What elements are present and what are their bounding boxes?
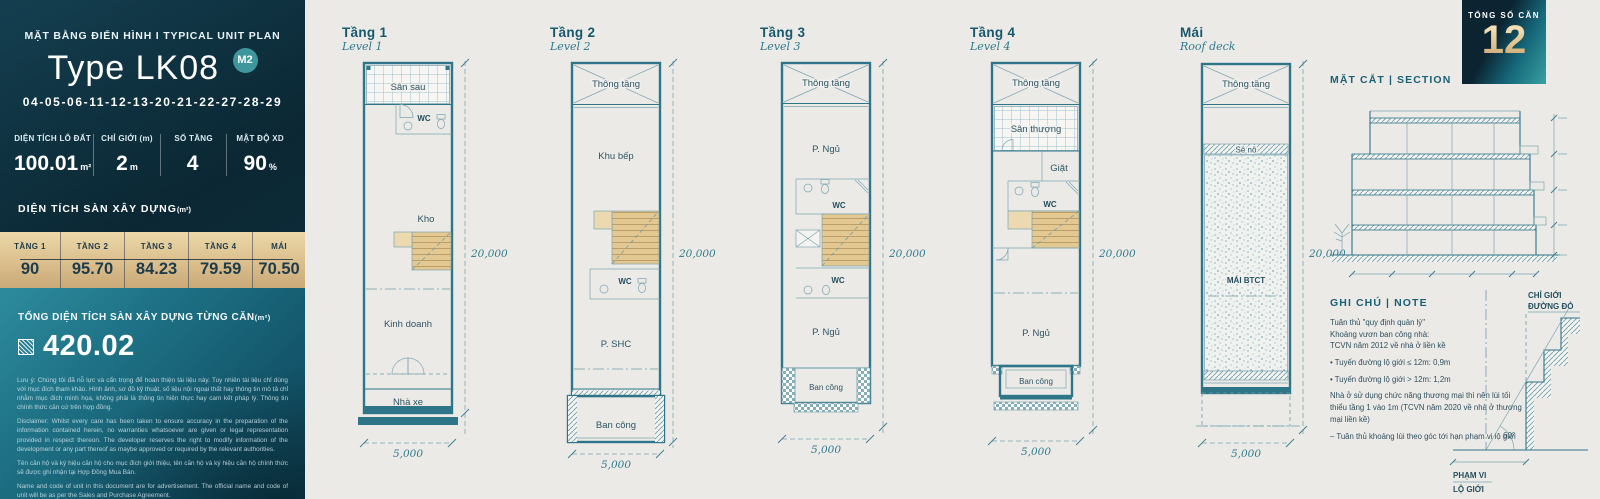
badge-value: 12 xyxy=(1462,20,1546,61)
sidebar-header: MẶT BẰNG ĐIỂN HÌNH I TYPICAL UNIT PLAN xyxy=(0,30,305,42)
room-wc-lower: WC xyxy=(831,276,845,285)
stat-label: MẬT ĐỘ XD xyxy=(229,134,291,143)
stat-value: 100.01m² xyxy=(14,152,91,176)
label-pham-vi: PHẠM VI xyxy=(1453,471,1486,480)
dim-horizontal: 5,000 xyxy=(393,448,423,460)
section-heading: MẶT CẮT | SECTION xyxy=(1330,74,1451,86)
room-kinh-doanh: Kinh doanh xyxy=(384,319,432,330)
disclaimer-vi: Lưu ý: Chúng tôi đã nỗ lực và cẩn trọng … xyxy=(17,376,288,412)
note-heading: GHI CHÚ | NOTE xyxy=(1330,297,1428,309)
total-area-title: TỔNG DIỆN TÍCH SÀN XÂY DỰNG TỪNG CĂN(m²) xyxy=(0,288,305,323)
total-units-badge: TỔNG SỐ CĂN 12 xyxy=(1462,0,1546,84)
label-chi-gioi: CHỈ GIỚI xyxy=(1528,291,1562,300)
room-wc-upper: WC xyxy=(832,201,846,210)
room-p-ngu-lower: P. Ngủ xyxy=(812,327,840,338)
table-divider xyxy=(20,259,293,260)
room-wc: WC xyxy=(417,114,431,123)
plan-title: Tầng 1 xyxy=(342,25,520,40)
label-duong-do: ĐƯỜNG ĐỎ xyxy=(1528,302,1573,311)
dim-horizontal: 5,000 xyxy=(601,459,631,471)
dim-vertical: 20,000 xyxy=(1098,248,1136,260)
type-title: Type LK08 xyxy=(47,49,219,87)
plan-drawing: 20,000 Sân sau WC Kho Kinh doanh xyxy=(358,59,508,460)
room-san-sau: Sân sau xyxy=(391,82,426,93)
plan-subtitle: Level 3 xyxy=(760,40,938,53)
stat-floors: SỐ TẦNG 4 xyxy=(161,134,228,176)
stat-label: SỐ TẦNG xyxy=(163,134,225,143)
room-thong-tang: Thông tầng xyxy=(802,78,850,89)
room-ban-cong: Ban công xyxy=(809,383,843,392)
disclaimer: Lưu ý: Chúng tôi đã nỗ lực và cẩn trọng … xyxy=(17,376,288,499)
floorplan-level-1: 20,000 Sân sau WC Kho Kinh doanh xyxy=(320,56,520,486)
floorplan-level-2: 20,000 Thông tầng Khu bếp WC P. SHC xyxy=(528,56,728,486)
plan-subtitle: Level 4 xyxy=(970,40,1148,53)
type-row: Type LK08 M2 xyxy=(0,48,305,88)
stat-label: CHỈ GIỚI (m) xyxy=(96,134,158,143)
dim-horizontal: 5,000 xyxy=(1231,448,1261,460)
setback-graphics: CHỈ GIỚI ĐƯỜNG ĐỎ 60° PHẠM VI LỘ GIỚI xyxy=(1450,290,1588,494)
plan-level-1: Tầng 1 Level 1 20,000 Sân sau WC Kho xyxy=(320,25,520,486)
room-kho: Kho xyxy=(418,214,435,225)
strip-se-no: Sê nô xyxy=(1236,146,1257,155)
label-angle: 60° xyxy=(1503,431,1515,440)
total-area-row: 420.02 xyxy=(18,330,305,363)
hatch-square-icon xyxy=(18,339,34,355)
dim-vertical: 20,000 xyxy=(888,248,926,260)
label-lo-gioi: LỘ GIỚI xyxy=(1453,485,1484,494)
unit-name-note-en: Name and code of unit in this document a… xyxy=(17,482,288,499)
stats-row: DIỆN TÍCH LÔ ĐẤT 100.01m² CHỈ GIỚI (m) 2… xyxy=(12,134,293,176)
plan-subtitle: Roof deck xyxy=(1180,40,1358,53)
room-p-shc: P. SHC xyxy=(601,339,632,350)
room-p-ngu: P. Ngủ xyxy=(1022,328,1050,339)
stat-value: 90% xyxy=(229,152,291,176)
plan-title: Tầng 3 xyxy=(760,25,938,40)
room-thong-tang: Thông tầng xyxy=(1222,79,1270,90)
room-khu-bep: Khu bếp xyxy=(598,151,633,162)
unit-name-note-vi: Tên căn hộ và ký hiệu căn hộ cho mục đíc… xyxy=(17,459,288,477)
floor-area-title: DIỆN TÍCH SÀN XÂY DỰNG(m²) xyxy=(18,203,305,215)
room-ban-cong: Ban công xyxy=(596,420,636,431)
stat-setback: CHỈ GIỚI (m) 2m xyxy=(94,134,161,176)
floor-area-col-4: TẦNG 4 79.59 xyxy=(189,232,253,288)
floor-area-col-3: TẦNG 3 84.23 xyxy=(125,232,189,288)
plan-level-4: Tầng 4 Level 4 20,000 Thông tầng Sân thư… xyxy=(948,25,1148,486)
room-giat: Giặt xyxy=(1050,163,1068,174)
plan-level-3: Tầng 3 Level 3 20,000 Thông tầng P. Ngủ … xyxy=(738,25,938,486)
plan-subtitle: Level 1 xyxy=(342,40,520,53)
room-p-ngu-upper: P. Ngủ xyxy=(812,144,840,155)
dim-horizontal: 5,000 xyxy=(811,444,841,456)
plan-title: Tầng 2 xyxy=(550,25,728,40)
total-area-value: 420.02 xyxy=(43,330,135,363)
plan-title: Tầng 4 xyxy=(970,25,1148,40)
plan-drawing: 20,000 Thông tầng Sân thượng Giặt WC xyxy=(988,59,1136,458)
room-thong-tang: Thông tầng xyxy=(1012,78,1060,89)
floor-area-col-2: TẦNG 2 95.70 xyxy=(61,232,125,288)
section-drawing xyxy=(1322,92,1572,292)
plan-drawing: 20,000 Thông tầng P. Ngủ WC WC xyxy=(778,59,926,456)
room-wc: WC xyxy=(1043,200,1057,209)
dim-horizontal: 5,000 xyxy=(1021,446,1051,458)
plan-subtitle: Level 2 xyxy=(550,40,728,53)
type-badge: M2 xyxy=(233,48,258,73)
dim-vertical: 20,000 xyxy=(678,248,716,260)
floorplan-level-4: 20,000 Thông tầng Sân thượng Giặt WC xyxy=(948,56,1148,486)
total-area-block: TỔNG DIỆN TÍCH SÀN XÂY DỰNG TỪNG CĂN(m²)… xyxy=(0,288,305,499)
setback-diagram: CHỈ GIỚI ĐƯỜNG ĐỎ 60° PHẠM VI LỘ GIỚI xyxy=(1448,282,1598,497)
floor-area-col-roof: MÁI 70.50 xyxy=(253,232,305,288)
stat-density: MẬT ĐỘ XD 90% xyxy=(227,134,293,176)
floor-area-col-1: TẦNG 1 90 xyxy=(0,232,61,288)
floorplan-level-3: 20,000 Thông tầng P. Ngủ WC WC xyxy=(738,56,938,486)
stat-value: 2m xyxy=(96,152,158,176)
floor-area-grid: TẦNG 1 90 TẦNG 2 95.70 TẦNG 3 84.23 TẦNG… xyxy=(0,232,305,288)
plan-title: Mái xyxy=(1180,25,1358,40)
unit-numbers: 04-05-06-11-12-13-20-21-22-27-28-29 xyxy=(0,95,305,109)
room-ban-cong: Ban công xyxy=(1019,377,1053,386)
stat-value: 4 xyxy=(163,152,225,176)
sidebar: MẶT BẰNG ĐIỂN HÌNH I TYPICAL UNIT PLAN T… xyxy=(0,0,305,499)
room-wc: WC xyxy=(618,277,632,286)
area-mai-btct: MÁI BTCT xyxy=(1227,276,1265,285)
disclaimer-en: Disclaimer: Whilst every care has been t… xyxy=(17,417,288,453)
plan-level-2: Tầng 2 Level 2 20,000 Thông tầng Khu bếp… xyxy=(528,25,728,486)
floor-area-table: TẦNG 1 90 TẦNG 2 95.70 TẦNG 3 84.23 TẦNG… xyxy=(0,232,305,288)
section-graphics xyxy=(1330,111,1567,277)
room-san-thuong: Sân thượng xyxy=(1011,124,1062,135)
stat-lot-area: DIỆN TÍCH LÔ ĐẤT 100.01m² xyxy=(12,134,94,176)
stat-label: DIỆN TÍCH LÔ ĐẤT xyxy=(14,134,91,143)
page: MẶT BẰNG ĐIỂN HÌNH I TYPICAL UNIT PLAN T… xyxy=(0,0,1600,499)
dim-vertical: 20,000 xyxy=(470,248,508,260)
room-thong-tang: Thông tầng xyxy=(592,79,640,90)
plan-drawing: 20,000 Thông tầng Khu bếp WC P. SHC xyxy=(568,59,716,471)
